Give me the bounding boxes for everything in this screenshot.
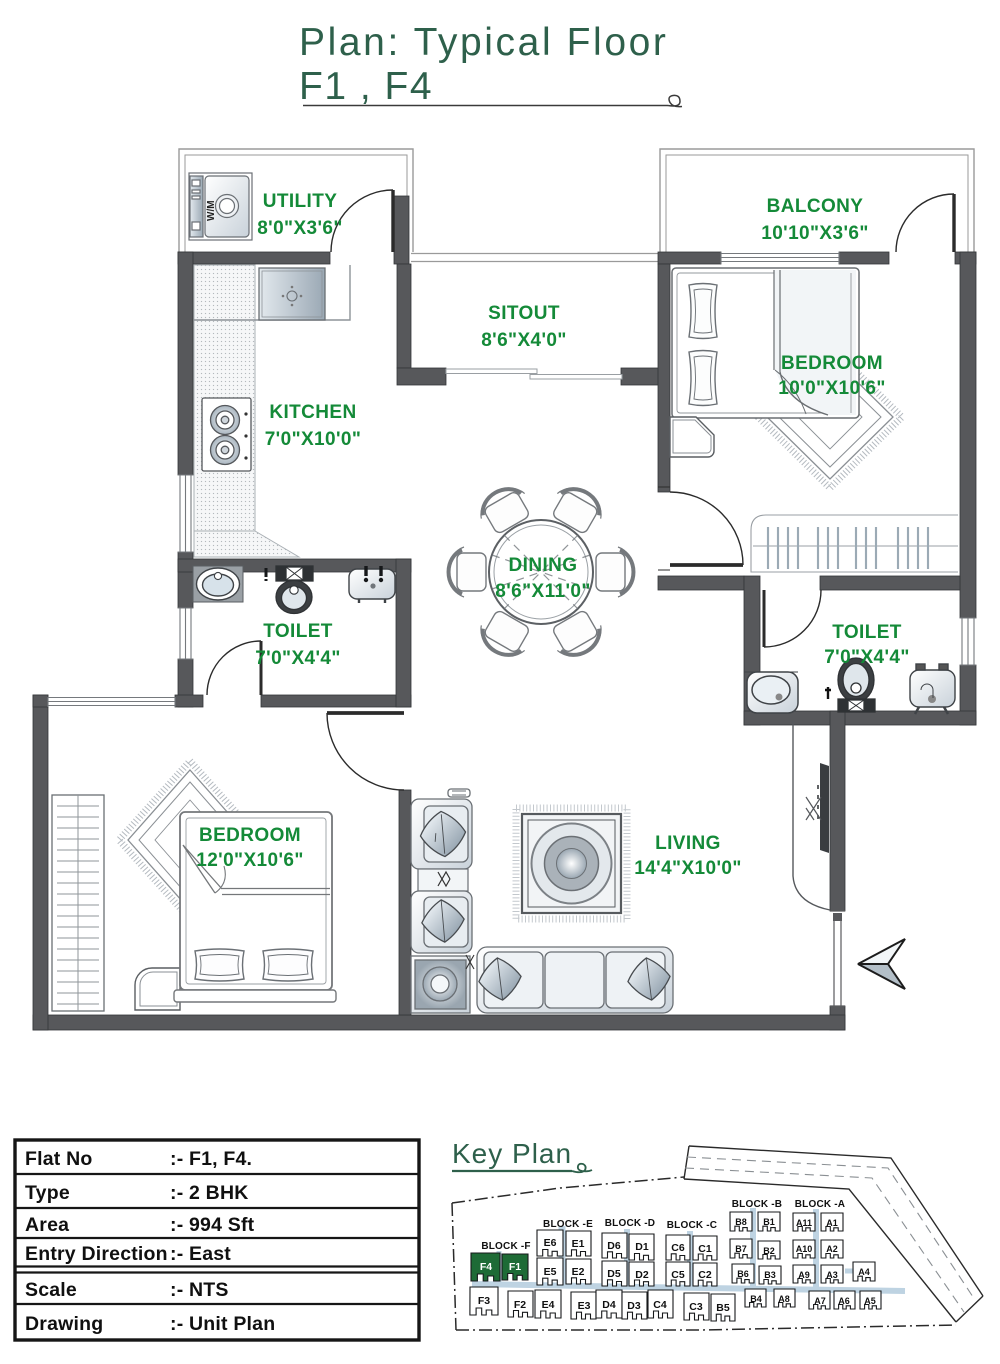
svg-text:TOILET: TOILET	[263, 621, 333, 642]
svg-text:Type: Type	[25, 1182, 70, 1204]
svg-text:C3: C3	[689, 1301, 703, 1313]
svg-text:W/M: W/M	[206, 200, 217, 221]
svg-text:E6: E6	[544, 1237, 557, 1249]
svg-text:10'10"X3'6": 10'10"X3'6"	[761, 223, 869, 244]
svg-text:TOILET: TOILET	[832, 622, 902, 643]
svg-text:B6: B6	[737, 1269, 749, 1279]
svg-text:A4: A4	[858, 1267, 870, 1277]
svg-text:A11: A11	[796, 1218, 812, 1228]
svg-text:SITOUT: SITOUT	[488, 303, 560, 324]
svg-text:Entry Direction: Entry Direction	[25, 1243, 168, 1265]
svg-text:Flat No: Flat No	[25, 1148, 92, 1170]
svg-text:B8: B8	[735, 1217, 747, 1227]
svg-text:Area: Area	[25, 1214, 69, 1236]
svg-text:A3: A3	[826, 1270, 838, 1280]
svg-text:F2: F2	[514, 1299, 526, 1311]
svg-text:F4: F4	[480, 1261, 492, 1273]
svg-text:D3: D3	[627, 1300, 641, 1312]
svg-text:A8: A8	[778, 1294, 790, 1304]
svg-text:E3: E3	[578, 1300, 591, 1312]
svg-text:BLOCK -A: BLOCK -A	[795, 1199, 845, 1210]
svg-text:BEDROOM: BEDROOM	[199, 825, 301, 846]
svg-text:B3: B3	[764, 1270, 776, 1280]
svg-text:BLOCK -D: BLOCK -D	[605, 1218, 655, 1229]
svg-text:8'6"X4'0": 8'6"X4'0"	[481, 330, 567, 351]
svg-text:A7: A7	[814, 1296, 826, 1306]
svg-text:LIVING: LIVING	[655, 833, 721, 854]
svg-text:7'0"X4'4": 7'0"X4'4"	[824, 647, 910, 668]
svg-text:Scale: Scale	[25, 1279, 77, 1301]
svg-text:A10: A10	[796, 1244, 813, 1254]
svg-text:E5: E5	[544, 1266, 557, 1278]
svg-text::- NTS: :- NTS	[170, 1279, 229, 1301]
svg-text:10'0"X10'6": 10'0"X10'6"	[778, 378, 886, 399]
svg-text:B5: B5	[716, 1302, 730, 1314]
svg-text:E2: E2	[572, 1266, 585, 1278]
svg-text:D6: D6	[607, 1240, 621, 1252]
svg-text:C2: C2	[698, 1269, 712, 1281]
svg-text:Key Plan: Key Plan	[452, 1138, 572, 1169]
svg-text:E4: E4	[542, 1299, 555, 1311]
svg-text:Drawing: Drawing	[25, 1313, 103, 1335]
svg-text:7'0"X4'4": 7'0"X4'4"	[255, 648, 341, 669]
svg-text::- Unit Plan: :- Unit Plan	[170, 1313, 275, 1335]
svg-text:BLOCK -C: BLOCK -C	[667, 1220, 717, 1231]
svg-text:BLOCK -B: BLOCK -B	[732, 1199, 782, 1210]
svg-text::- F1, F4.: :- F1, F4.	[170, 1148, 252, 1170]
svg-text:C6: C6	[671, 1242, 685, 1254]
svg-text:B1: B1	[763, 1217, 775, 1227]
svg-text:B7: B7	[735, 1244, 747, 1254]
svg-text:UTILITY: UTILITY	[263, 191, 338, 212]
svg-text:BLOCK -E: BLOCK -E	[543, 1219, 593, 1230]
svg-text::- East: :- East	[170, 1243, 231, 1265]
svg-text:8'0"X3'6": 8'0"X3'6"	[257, 218, 343, 239]
svg-text:14'4"X10'0": 14'4"X10'0"	[634, 858, 742, 879]
svg-text:C5: C5	[671, 1269, 685, 1281]
svg-text:BLOCK -F: BLOCK -F	[481, 1241, 530, 1252]
svg-text:E1: E1	[572, 1238, 585, 1250]
svg-text::- 2 BHK: :- 2 BHK	[170, 1182, 249, 1204]
svg-text:A5: A5	[864, 1296, 876, 1306]
svg-text:A1: A1	[826, 1218, 838, 1228]
svg-text:D1: D1	[635, 1241, 649, 1253]
svg-text:C1: C1	[698, 1243, 712, 1255]
svg-text:Plan: Typical Floor: Plan: Typical Floor	[299, 21, 669, 64]
svg-text:12'0"X10'6": 12'0"X10'6"	[196, 850, 304, 871]
svg-text:B4: B4	[750, 1294, 762, 1304]
svg-text:BALCONY: BALCONY	[767, 196, 864, 217]
svg-text:F1 , F4: F1 , F4	[299, 65, 433, 108]
svg-text:D2: D2	[635, 1269, 649, 1281]
svg-text:B2: B2	[763, 1246, 775, 1256]
svg-text:D4: D4	[602, 1299, 616, 1311]
svg-text:A2: A2	[826, 1244, 838, 1254]
svg-text:D5: D5	[607, 1268, 621, 1280]
svg-text:7'0"X10'0": 7'0"X10'0"	[265, 429, 362, 450]
svg-text:A9: A9	[798, 1270, 810, 1280]
svg-text:F1: F1	[509, 1261, 521, 1273]
svg-text:8'6"X11'0": 8'6"X11'0"	[495, 581, 591, 602]
svg-text:KITCHEN: KITCHEN	[269, 402, 356, 423]
svg-text:A6: A6	[838, 1296, 850, 1306]
svg-text::- 994 Sft: :- 994 Sft	[170, 1214, 255, 1236]
svg-text:C4: C4	[653, 1299, 667, 1311]
svg-text:F3: F3	[478, 1295, 490, 1307]
svg-text:BEDROOM: BEDROOM	[781, 353, 883, 374]
svg-text:DINING: DINING	[509, 555, 578, 576]
